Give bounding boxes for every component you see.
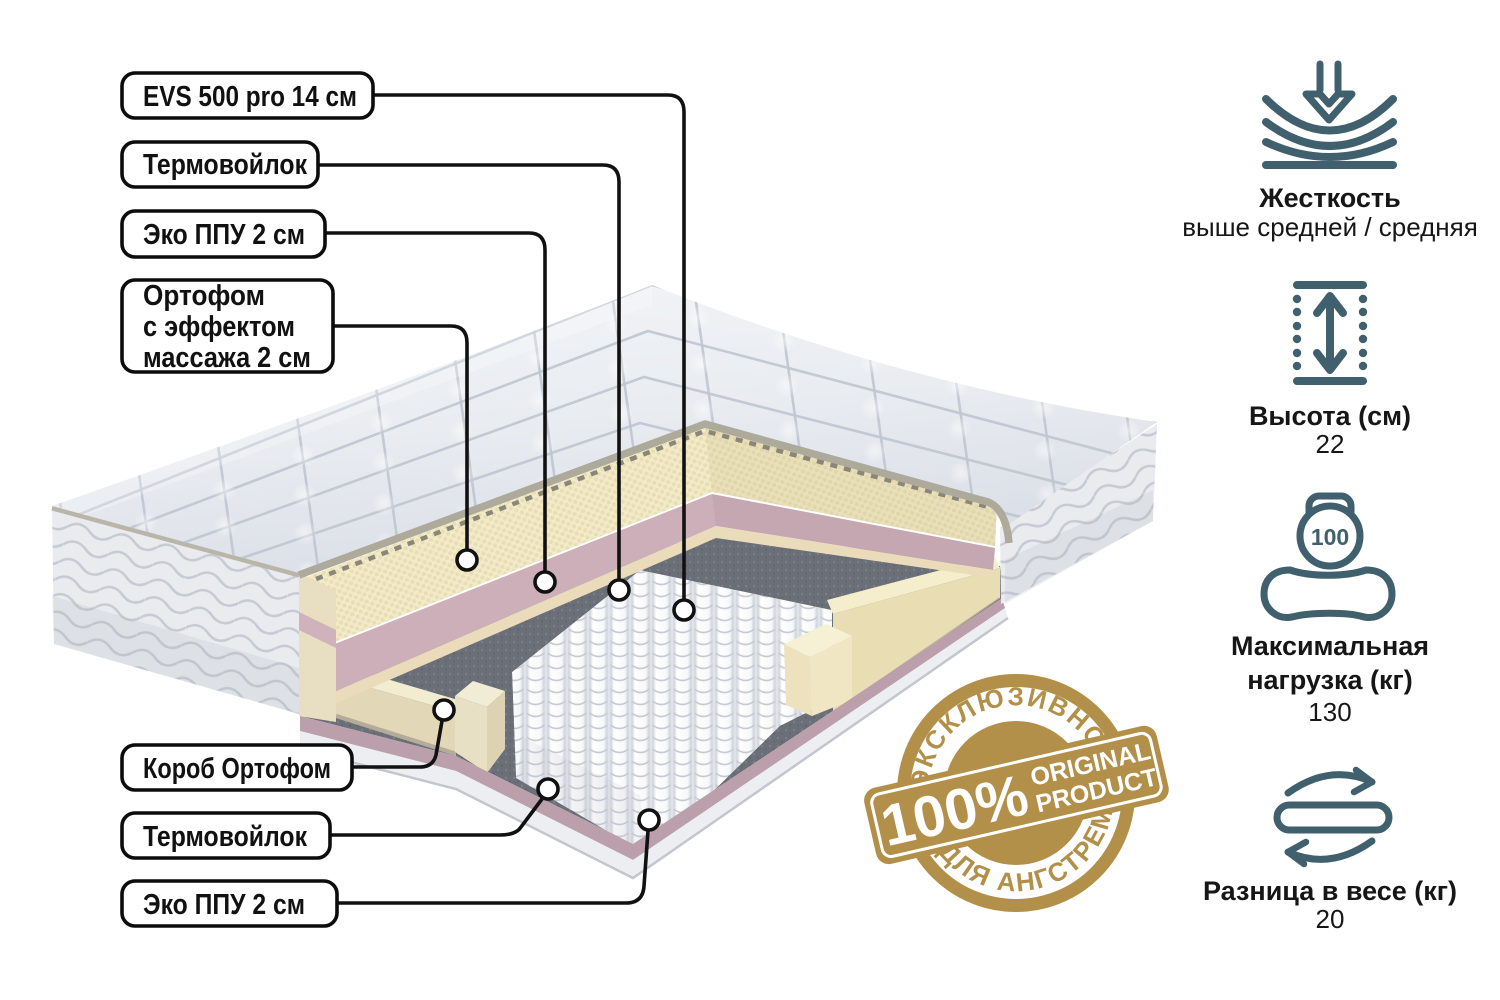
svg-text:EVS 500 pro 14 см: EVS 500 pro 14 см [143, 81, 357, 113]
svg-text:130: 130 [1308, 697, 1351, 727]
svg-text:выше средней / средняя: выше средней / средняя [1182, 212, 1478, 242]
svg-text:нагрузка (кг): нагрузка (кг) [1247, 665, 1413, 695]
svg-text:Ортофом: Ортофом [143, 280, 265, 312]
svg-text:Короб Ортофом: Короб Ортофом [143, 753, 331, 785]
svg-text:Жесткость: Жесткость [1258, 183, 1400, 213]
svg-text:Максимальная: Максимальная [1231, 631, 1429, 661]
svg-text:Высота (см): Высота (см) [1249, 401, 1411, 431]
svg-text:100: 100 [1311, 524, 1349, 550]
svg-text:Термовойлок: Термовойлок [143, 821, 307, 853]
svg-text:Разница в весе (кг): Разница в весе (кг) [1203, 876, 1457, 906]
svg-text:20: 20 [1316, 904, 1345, 934]
svg-text:Термовойлок: Термовойлок [143, 149, 307, 181]
svg-text:Эко ППУ 2 см: Эко ППУ 2 см [143, 889, 305, 921]
svg-text:Эко ППУ 2 см: Эко ППУ 2 см [143, 219, 305, 251]
svg-text:массажа 2 см: массажа 2 см [143, 342, 311, 374]
svg-text:22: 22 [1316, 429, 1345, 459]
svg-text:с эффектом: с эффектом [143, 311, 295, 343]
